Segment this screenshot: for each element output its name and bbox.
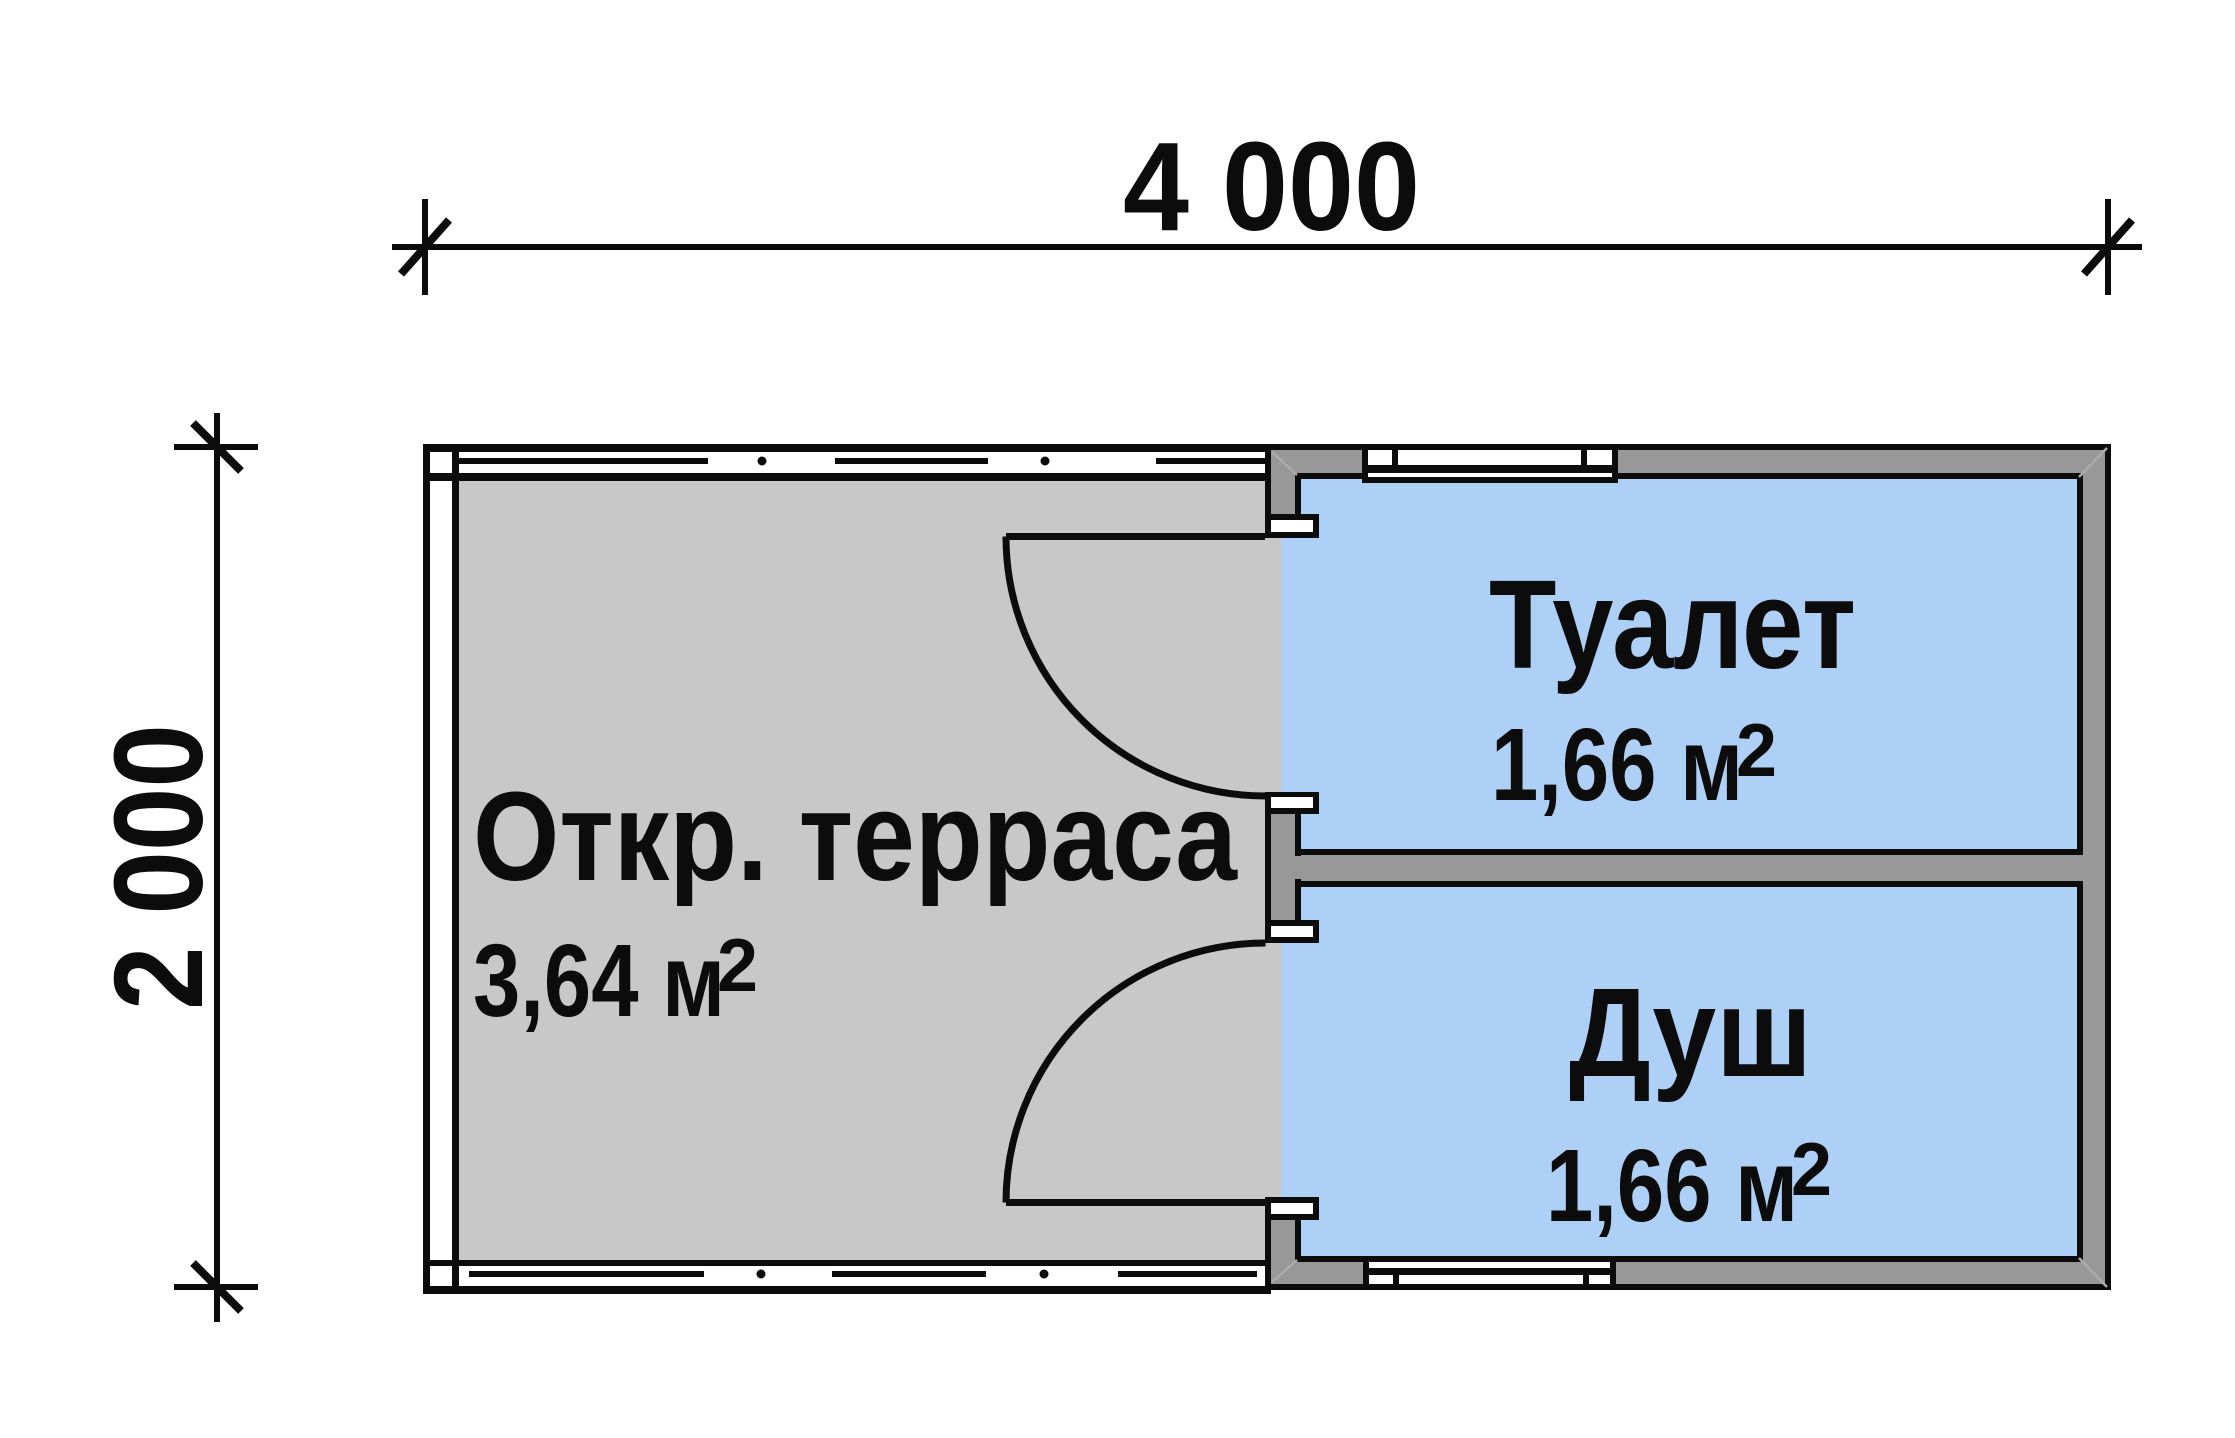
svg-text:1,66 м: 1,66 м (1491, 707, 1743, 822)
svg-text:2: 2 (1791, 1127, 1832, 1211)
svg-text:2 000: 2 000 (88, 724, 229, 1010)
svg-text:1,66 м: 1,66 м (1546, 1128, 1798, 1243)
svg-text:Душ: Душ (1569, 962, 1812, 1103)
svg-text:2: 2 (1736, 708, 1777, 792)
svg-text:2: 2 (717, 923, 758, 1007)
svg-text:Откр. терраса: Откр. терраса (473, 766, 1238, 907)
svg-text:3,64 м: 3,64 м (473, 923, 725, 1038)
svg-text:Туалет: Туалет (1489, 554, 1856, 695)
svg-text:4 000: 4 000 (1123, 116, 1420, 257)
